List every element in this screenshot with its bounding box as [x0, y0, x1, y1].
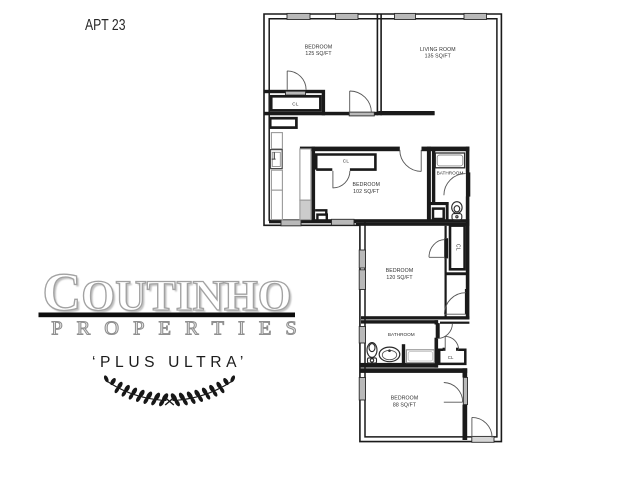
svg-text:BEDROOM: BEDROOM	[305, 44, 333, 50]
svg-text:120 SQ/FT: 120 SQ/FT	[386, 275, 413, 281]
svg-text:135 SQ/FT: 135 SQ/FT	[425, 54, 452, 60]
svg-text:BATHROOM: BATHROOM	[388, 332, 415, 337]
svg-text:BEDROOM: BEDROOM	[353, 182, 381, 188]
svg-text:102 SQ/FT: 102 SQ/FT	[353, 189, 380, 195]
svg-text:BATHROOM: BATHROOM	[437, 171, 464, 176]
svg-text:CL: CL	[343, 159, 350, 164]
svg-text:CL: CL	[292, 101, 299, 106]
svg-text:88 SQ/FT: 88 SQ/FT	[393, 403, 417, 409]
svg-text:APT 23: APT 23	[85, 17, 126, 34]
svg-text:BEDROOM: BEDROOM	[391, 396, 419, 402]
svg-text:LIVING ROOM: LIVING ROOM	[420, 47, 456, 53]
svg-text:PROPERTIES: PROPERTIES	[51, 318, 311, 340]
svg-text:125 SQ/FT: 125 SQ/FT	[305, 51, 332, 57]
svg-text:BEDROOM: BEDROOM	[386, 268, 414, 274]
svg-text:CL: CL	[454, 244, 460, 251]
svg-text:‘PLUS ULTRA’: ‘PLUS ULTRA’	[92, 354, 248, 371]
svg-text:CL: CL	[448, 355, 454, 360]
